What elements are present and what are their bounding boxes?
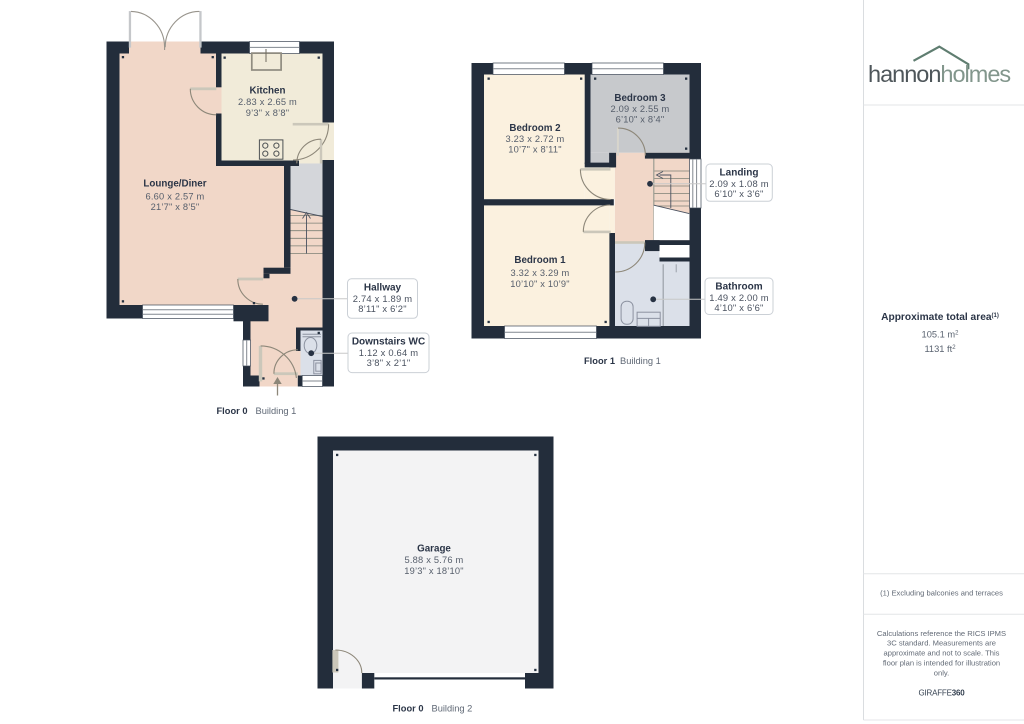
svg-text:Bedroom 3: Bedroom 3 [614,93,666,104]
svg-text:only.: only. [934,668,949,677]
svg-text:6’10" x 3’6": 6’10" x 3’6" [714,188,763,199]
svg-text:(1) Excluding balconies and te: (1) Excluding balconies and terraces [880,589,1003,598]
svg-text:2.09 x 2.55 m: 2.09 x 2.55 m [611,104,670,114]
svg-text:Garage: Garage [417,544,451,555]
svg-text:Kitchen: Kitchen [250,85,286,96]
svg-text:2.83 x 2.65 m: 2.83 x 2.65 m [238,97,297,107]
svg-text:Hallway: Hallway [364,282,402,293]
svg-text:10’10" x 10’9": 10’10" x 10’9" [510,279,570,289]
svg-text:1131 ft2: 1131 ft2 [924,344,956,354]
svg-text:6.60 x 2.57 m: 6.60 x 2.57 m [146,191,205,201]
svg-text:Calculations reference the RIC: Calculations reference the RICS IPMS [877,629,1006,638]
svg-text:Approximate total area(1): Approximate total area(1) [881,312,999,323]
svg-text:3.32 x 3.29 m: 3.32 x 3.29 m [511,268,570,278]
svg-text:Landing: Landing [720,168,759,179]
svg-text:Building 1: Building 1 [256,406,297,416]
svg-text:Bedroom 2: Bedroom 2 [509,123,561,134]
svg-text:Bedroom 1: Bedroom 1 [514,255,566,266]
svg-text:105.1 m2: 105.1 m2 [922,330,960,340]
svg-text:5.88 x 5.76 m: 5.88 x 5.76 m [405,555,464,565]
svg-text:Floor 0: Floor 0 [393,704,424,714]
svg-text:9’3" x 8’8": 9’3" x 8’8" [246,108,289,118]
svg-text:19’3" x 18’10": 19’3" x 18’10" [404,566,464,576]
svg-text:Floor 0: Floor 0 [217,406,248,416]
svg-text:3’8" x 2’1": 3’8" x 2’1" [367,357,411,368]
svg-text:hannonholmes: hannonholmes [868,61,1010,87]
svg-text:3.23 x 2.72 m: 3.23 x 2.72 m [506,134,565,144]
svg-text:21’7" x 8’5": 21’7" x 8’5" [151,202,200,212]
svg-text:Bathroom: Bathroom [715,282,762,293]
svg-text:floor plan is intended for ill: floor plan is intended for illustration [883,659,1000,668]
svg-text:3C standard. Measurements are: 3C standard. Measurements are [887,639,996,648]
svg-text:Building 2: Building 2 [432,704,473,714]
svg-text:Downstairs WC: Downstairs WC [352,337,425,348]
svg-text:10’7" x 8’11": 10’7" x 8’11" [508,144,561,154]
svg-text:approximate and not to scale.: approximate and not to scale. This [884,649,1000,658]
svg-text:GIRAFFE360: GIRAFFE360 [918,689,965,698]
svg-text:Lounge/Diner: Lounge/Diner [143,179,206,190]
svg-text:Building 1: Building 1 [620,356,661,366]
svg-text:4’10" x 6’6": 4’10" x 6’6" [714,302,763,313]
svg-text:8’11" x 6’2": 8’11" x 6’2" [358,303,407,314]
svg-text:Floor 1: Floor 1 [584,356,615,366]
svg-text:6’10" x 8’4": 6’10" x 8’4" [616,115,665,125]
